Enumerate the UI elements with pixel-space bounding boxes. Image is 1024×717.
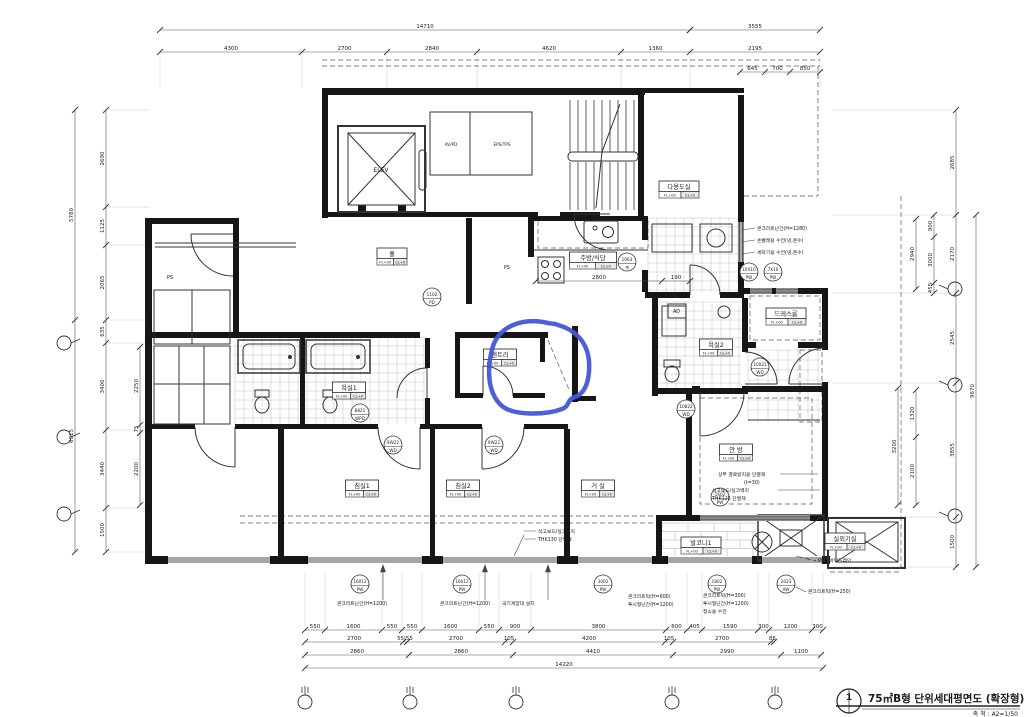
svg-text:PD: PD — [429, 300, 435, 305]
dim-text: 1100 — [794, 649, 808, 655]
svg-text:CL+0: CL+0 — [851, 545, 862, 549]
svg-text:FL+00: FL+00 — [577, 264, 589, 268]
opening-tag: 1802PW — [708, 575, 726, 593]
dim-text: 2100 — [910, 464, 916, 478]
room-name: 홀 — [389, 249, 395, 258]
dim-text: 2700 — [715, 636, 729, 642]
svg-text:CL+0: CL+0 — [602, 492, 613, 496]
dim-text: 550 — [387, 624, 398, 630]
svg-text:FL+00: FL+00 — [830, 545, 842, 549]
dim-text: 3855 — [950, 443, 956, 457]
dim-text: 2990 — [720, 649, 734, 655]
room-name: 욕실2 — [708, 340, 724, 349]
dim-text: 1500 — [950, 535, 956, 549]
svg-text:FL+00: FL+00 — [450, 492, 462, 496]
opening-tag: 1063계 — [618, 253, 636, 271]
svg-text:2023: 2023 — [781, 579, 792, 584]
note-text: AD — [673, 309, 680, 315]
svg-text:AW: AW — [783, 587, 790, 592]
dim-text: 2700 — [449, 636, 463, 642]
note-text: 콘크리트난간(H=1280) — [757, 225, 807, 232]
svg-text:계: 계 — [625, 264, 629, 271]
elevator-label: ELEV — [373, 167, 389, 174]
dim-text: 2700 — [347, 636, 361, 642]
room-name: 주방/식당 — [580, 253, 606, 262]
svg-text:16012: 16012 — [353, 579, 367, 584]
opening-tag: 3002PW — [594, 575, 612, 593]
grid-bubble — [939, 509, 962, 523]
room-label: 드레스룸FL+00CL+0 — [766, 308, 806, 325]
svg-text:9W22: 9W22 — [488, 440, 500, 445]
svg-text:WD: WD — [682, 412, 689, 417]
dim-text: 2200 — [134, 462, 140, 476]
note-text: 콘크리트턱(H=250) — [808, 588, 851, 595]
svg-text:PW: PW — [770, 275, 777, 280]
dim-text: 550 — [484, 624, 495, 630]
room-name: 욕실1 — [341, 383, 357, 392]
opening-tag: 1102PD — [423, 288, 441, 306]
note-text: 석고보드/실크벽지 — [538, 528, 575, 535]
dim-text: 850 — [800, 66, 811, 72]
grid-bubble — [665, 686, 679, 709]
dim-text: 4200 — [582, 636, 596, 642]
svg-text:PW: PW — [459, 587, 466, 592]
dim-text: 4410 — [586, 649, 600, 655]
dim-text: 2065 — [100, 275, 106, 289]
dim-text: 550 — [310, 624, 321, 630]
note-text: 콘크리트난간(H=1200) — [440, 600, 490, 607]
dim-text: 2800 — [592, 275, 606, 281]
svg-text:1802: 1802 — [712, 579, 723, 584]
svg-text:1102: 1102 — [427, 292, 438, 297]
dim-text: 2860 — [350, 649, 364, 655]
dim-text: 2690 — [100, 151, 106, 165]
svg-text:CL+0: CL+0 — [792, 320, 803, 324]
dim-text: 55|55 — [397, 636, 413, 642]
svg-text:9W22: 9W22 — [387, 440, 399, 445]
opening-tag: 7X10PW — [764, 263, 782, 281]
svg-text:CL+0: CL+0 — [601, 264, 612, 268]
dim-text: 2545 — [950, 331, 956, 345]
note-text: (t=30) — [744, 480, 760, 486]
note-text: PS — [504, 265, 510, 271]
grid-bubble — [939, 282, 962, 296]
svg-text:8821: 8821 — [355, 408, 366, 413]
opening-tag: 16012PW — [351, 575, 369, 593]
dim-text: 1360 — [649, 46, 663, 52]
svg-text:CL+0: CL+0 — [504, 361, 515, 365]
room-label: 발코니1FL+00CL+0 — [681, 537, 721, 554]
note-text: 콘크리트난간(H=1200) — [337, 600, 387, 607]
dim-text: 1600 — [444, 624, 458, 630]
floor-plan-svg: 1471035554300270028404620136021956457008… — [0, 0, 1024, 717]
grid-bubble — [768, 686, 782, 709]
svg-text:PW: PW — [357, 587, 364, 592]
dim-text: 105 — [664, 636, 675, 642]
duct-right-label: EPS/TPS — [494, 142, 511, 147]
svg-text:CL+0: CL+0 — [720, 351, 731, 355]
dim-text: 3000 — [928, 253, 934, 267]
room-label: 침실1FL+00CL+0 — [346, 480, 379, 497]
dim-text: 3200 — [892, 439, 898, 453]
svg-text:CL+0: CL+0 — [707, 549, 718, 553]
dim-text: 2195 — [748, 46, 762, 52]
note-text: 국기게양대 설치 — [502, 600, 534, 607]
note-text: 청소용 수전 — [703, 608, 727, 615]
svg-text:16012: 16012 — [455, 579, 469, 584]
dim-text: 900 — [510, 624, 521, 630]
floor-plan-page: 1471035554300270028404620136021956457008… — [0, 0, 1024, 717]
dim-text: 1320 — [910, 406, 916, 420]
svg-text:FL+00: FL+00 — [723, 456, 735, 460]
dim-text: 2700 — [338, 46, 352, 52]
svg-text:FL+00: FL+00 — [379, 260, 391, 264]
room-label: 욕실1FL+00CL+0 — [333, 382, 366, 399]
room-label: 침실2FL+00CL+0 — [447, 480, 480, 497]
svg-text:PW: PW — [600, 587, 607, 592]
dim-text: 14710 — [416, 24, 434, 30]
dim-text: 1600 — [347, 624, 361, 630]
dim-text: 455 — [928, 282, 934, 293]
opening-tag: 9W22WD — [384, 436, 402, 454]
note-text: 콘크리트턱(H=600) — [628, 593, 671, 600]
core-labels: ELEV AV/PD EPS/TPS — [373, 142, 510, 174]
room-name: 침실1 — [354, 481, 370, 490]
opening-tag: 2023AW — [777, 575, 795, 593]
svg-text:10021: 10021 — [753, 362, 767, 367]
room-name: 안 방 — [729, 445, 743, 454]
drawing-scale: 축 척 : A2=1/50 — [973, 710, 1018, 717]
dim-text: 405 — [689, 624, 700, 630]
svg-text:WD: WD — [756, 370, 763, 375]
svg-text:CL+0: CL+0 — [685, 193, 696, 197]
dim-text: 1200 — [784, 624, 798, 630]
svg-text:PW: PW — [714, 587, 721, 592]
grid-bubble — [509, 686, 523, 709]
room-name: 발코니1 — [690, 538, 711, 547]
svg-text:FL+00: FL+00 — [336, 394, 348, 398]
dim-text: 645 — [747, 66, 758, 72]
dim-text: 5780 — [69, 208, 75, 222]
note-text: 투시형난간(H=1200) — [703, 600, 749, 607]
opening-tag: 8821WPD — [351, 404, 369, 422]
dimensions-layer: 1471035554300270028404620136021956457008… — [69, 24, 979, 671]
dim-text: 3800 — [592, 624, 606, 630]
svg-text:FL+00: FL+00 — [349, 492, 361, 496]
dim-text: 635 — [100, 326, 106, 337]
svg-text:FL+00: FL+00 — [703, 351, 715, 355]
svg-text:FL+00: FL+00 — [664, 193, 676, 197]
svg-text:3002: 3002 — [598, 579, 609, 584]
dim-text: 2860 — [454, 649, 468, 655]
svg-text:CL+0: CL+0 — [740, 456, 751, 460]
leader-lines — [381, 228, 821, 600]
room-label: 거 실FL+00CL+0 — [582, 480, 615, 497]
room-name: 거 실 — [591, 481, 605, 490]
room-name: 드레스룸 — [774, 309, 797, 318]
note-text: 석고보드/실크벽지 — [712, 487, 749, 494]
note-text: Ø75 바닥드레인 — [818, 557, 851, 564]
tile-hatch-layer — [235, 218, 820, 557]
note-text: 투시형난간(H=1200) — [628, 601, 674, 608]
note-text: THK125 단열재 — [711, 495, 746, 502]
note-text: PS — [167, 275, 173, 281]
svg-text:FL+00: FL+00 — [686, 549, 698, 553]
room-label: 홀FL+00CL+0 — [377, 248, 407, 265]
dim-text: 900 — [928, 220, 934, 231]
drawing-title: 75㎡B형 단위세대평면도 (확장형) — [868, 692, 1024, 705]
svg-text:10X10: 10X10 — [742, 267, 756, 272]
svg-text:FL+00: FL+00 — [585, 492, 597, 496]
duct-left-label: AV/PD — [445, 142, 458, 147]
note-text: 콘크리트턱(H=300) — [703, 592, 746, 599]
svg-text:PW: PW — [746, 275, 753, 280]
dim-text: 14220 — [555, 662, 573, 668]
dim-text: 75 — [134, 425, 140, 432]
opening-tag: 9W22WD — [485, 436, 503, 454]
opening-tag: 10822WD — [677, 400, 695, 418]
dim-text: 3440 — [100, 462, 106, 476]
note-text: 손빨래용 수전(냉,온수) — [757, 237, 804, 244]
dim-text: 1500 — [100, 523, 106, 537]
dim-text: 2940 — [910, 247, 916, 261]
svg-text:7X10: 7X10 — [768, 267, 779, 272]
dim-text: 300 — [812, 624, 823, 630]
dim-text: 300 — [758, 624, 769, 630]
room-label: 안 방FL+00CL+0 — [720, 444, 753, 461]
room-name: 침실2 — [455, 481, 471, 490]
room-name: 팬트리 — [491, 350, 508, 359]
svg-text:10822: 10822 — [679, 404, 693, 409]
opening-tag: 10X10PW — [740, 263, 758, 281]
dim-text: 2250 — [134, 379, 140, 393]
title-block: 1 75㎡B형 단위세대평면도 (확장형) 축 척 : A2=1/50 — [836, 689, 1024, 717]
svg-text:CL+0: CL+0 — [467, 492, 478, 496]
grid-bubble — [57, 336, 80, 350]
dim-text: 1590 — [723, 624, 737, 630]
dim-text: 9670 — [970, 384, 976, 398]
svg-text:CL+0: CL+0 — [353, 394, 364, 398]
dim-text: 3400 — [100, 379, 106, 393]
dim-text: 1125 — [100, 219, 106, 233]
opening-tag: 10021WD — [751, 358, 769, 376]
dim-text: 2840 — [425, 46, 439, 52]
room-label: 다용도실FL+00CL+0 — [659, 181, 699, 198]
dim-text: 700 — [772, 66, 783, 72]
room-label: 주방/식당FL+00CL+0 — [570, 252, 617, 269]
dim-text: 550 — [407, 624, 418, 630]
svg-text:1063: 1063 — [622, 257, 633, 262]
note-text: 세탁기용 수전(냉,온수) — [757, 249, 804, 256]
grid-bubble — [298, 686, 312, 709]
opening-tag: 16012PW — [453, 575, 471, 593]
dim-text: 4620 — [542, 46, 556, 52]
dim-text: 2170 — [950, 247, 956, 261]
grid-bubble — [57, 507, 80, 521]
dim-text: 600 — [671, 624, 682, 630]
room-label: 욕실2FL+00CL+0 — [700, 339, 733, 356]
svg-text:CL+0: CL+0 — [395, 260, 406, 264]
grid-bubble — [403, 686, 417, 709]
note-text: THK130 단열재 — [537, 536, 572, 543]
svg-text:FL+00: FL+00 — [771, 320, 783, 324]
room-labels-layer: 홀FL+00CL+0주방/식당FL+00CL+0다용도실FL+00CL+0팬트리… — [333, 181, 866, 554]
room-name: 실외기실 — [833, 534, 856, 543]
dim-text: 85 — [769, 636, 776, 642]
sheet-detail-number: 1 — [846, 693, 852, 703]
svg-text:WPD: WPD — [355, 416, 365, 421]
dim-text: 2685 — [950, 155, 956, 169]
room-name: 다용도실 — [667, 182, 690, 191]
dim-text: 105 — [504, 636, 515, 642]
dim-text: 190 — [671, 275, 682, 281]
svg-text:WD: WD — [389, 448, 396, 453]
svg-text:WD: WD — [490, 448, 497, 453]
dim-text: 3555 — [748, 24, 762, 30]
note-text: 상부 결로방지용 단열재 — [718, 471, 765, 478]
door-window-tags-layer: 9W22WD9W22WD8821WPD10822WD1063계10X10PW7X… — [351, 253, 795, 593]
dim-text: 4300 — [224, 46, 238, 52]
room-label: 실외기실FL+00CL+0 — [825, 533, 865, 550]
svg-text:CL+0: CL+0 — [366, 492, 377, 496]
